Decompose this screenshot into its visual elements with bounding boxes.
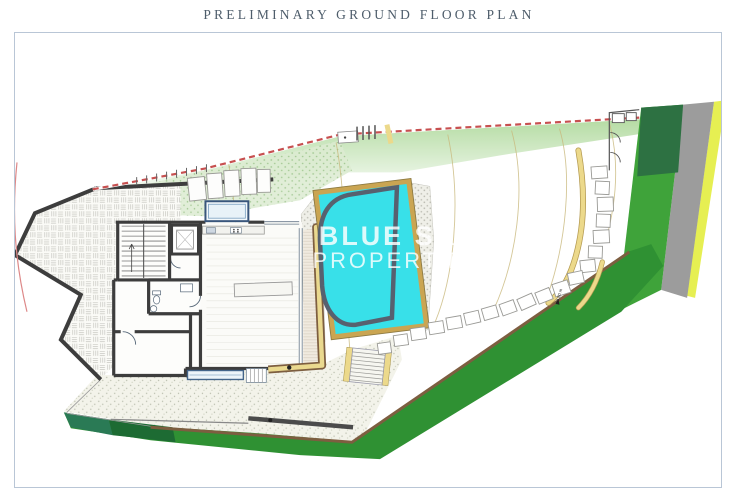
watermark-line1: BLUE SKY [319, 221, 479, 251]
skylight-window [205, 201, 248, 221]
dining-table [234, 282, 292, 297]
site-plan-svg: 14.80 m BLUE SKY PROPERTIES [15, 33, 721, 487]
watermark: BLUE SKY PROPERTIES [312, 221, 483, 273]
entrance-structure [609, 110, 639, 171]
house-steps [246, 369, 266, 383]
page-title: PRELIMINARY GROUND FLOOR PLAN [0, 7, 738, 23]
house [114, 201, 302, 382]
band-green-dark [637, 105, 683, 177]
kitchen [202, 226, 264, 234]
watermark-line2: PROPERTIES [312, 248, 483, 273]
plan-document: PRELIMINARY GROUND FLOOR PLAN [0, 0, 738, 496]
elevator [172, 225, 199, 254]
window-band-bottom [188, 371, 244, 380]
plan-frame: 14.80 m BLUE SKY PROPERTIES [14, 32, 722, 488]
